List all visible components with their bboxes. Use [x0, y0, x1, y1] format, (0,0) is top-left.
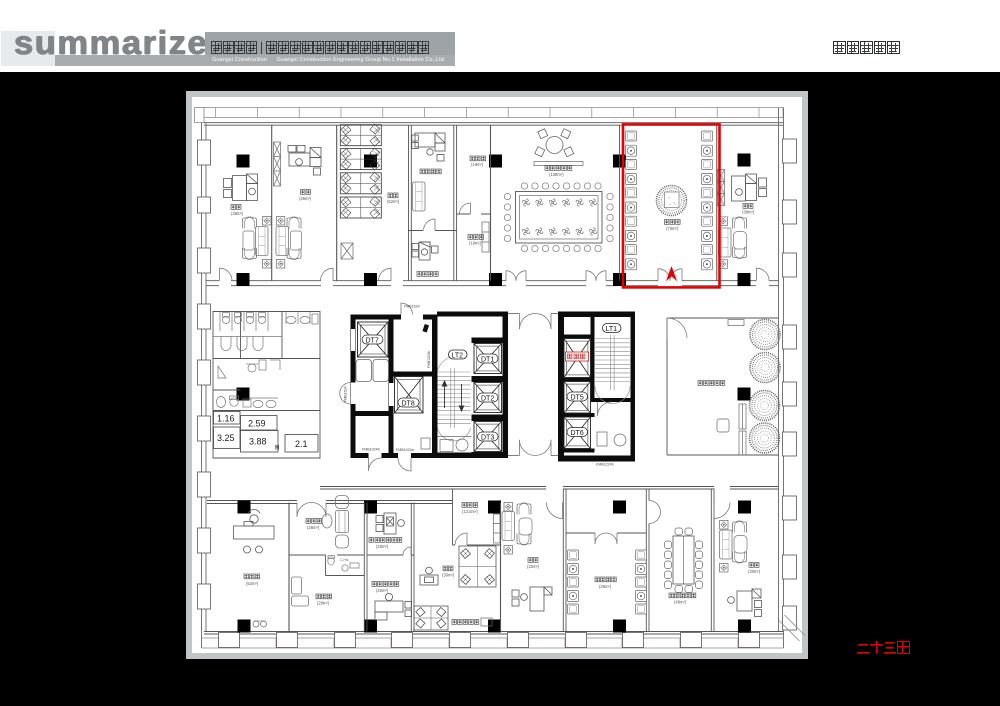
svg-text:(48m²): (48m²) — [674, 600, 687, 605]
svg-text:(36m²): (36m²) — [599, 584, 612, 589]
svg-text:(26m²): (26m²) — [307, 525, 320, 530]
svg-text:(52m²): (52m²) — [387, 199, 400, 204]
svg-text:(28m²): (28m²) — [317, 601, 330, 606]
svg-text:(20m²): (20m²) — [376, 588, 389, 593]
svg-text:2.1: 2.1 — [295, 439, 308, 449]
svg-text:DT5: DT5 — [571, 395, 584, 402]
svg-text:(38m²): (38m²) — [742, 210, 755, 215]
svg-text:DT7: DT7 — [366, 338, 379, 345]
svg-text:3.88: 3.88 — [249, 437, 267, 447]
svg-text:DT2: DT2 — [481, 396, 494, 403]
svg-text:(52m²): (52m²) — [246, 581, 259, 586]
svg-text:(36m²): (36m²) — [299, 196, 312, 201]
svg-text:FMB1024b: FMB1024b — [362, 448, 380, 452]
svg-text:FMB1024a: FMB1024a — [396, 448, 414, 452]
svg-text:FMB1324b: FMB1324b — [427, 351, 431, 368]
svg-text:3.25: 3.25 — [217, 433, 235, 443]
svg-text:2.59: 2.59 — [248, 419, 266, 429]
svg-text:(16m²): (16m²) — [469, 241, 482, 246]
svg-text:(32m²): (32m²) — [527, 564, 540, 569]
svg-text:(73m²): (73m²) — [666, 226, 679, 231]
svg-text:DT3: DT3 — [481, 435, 494, 442]
svg-text:(20m²): (20m²) — [376, 544, 389, 549]
svg-text:(138m²): (138m²) — [549, 172, 564, 177]
svg-text:1.16: 1.16 — [217, 414, 235, 424]
svg-text:(13.5m²): (13.5m²) — [462, 509, 478, 514]
svg-text:FMB1524: FMB1524 — [404, 305, 420, 309]
svg-text:(38m²): (38m²) — [231, 211, 244, 216]
svg-text:DT8: DT8 — [402, 401, 415, 408]
svg-text:(30m²): (30m²) — [442, 573, 455, 578]
svg-text:FMB1224b: FMB1224b — [596, 463, 614, 467]
svg-text:(30m²): (30m²) — [748, 569, 761, 574]
svg-text:DT6: DT6 — [571, 430, 584, 437]
svg-text:LT1: LT1 — [606, 326, 618, 333]
svg-text:LT2: LT2 — [452, 353, 464, 360]
svg-text:(18m²): (18m²) — [471, 162, 484, 167]
svg-text:DT1: DT1 — [481, 357, 494, 364]
svg-text:1.7m²: 1.7m² — [340, 558, 350, 562]
svg-text:FMB1524: FMB1524 — [344, 386, 348, 402]
